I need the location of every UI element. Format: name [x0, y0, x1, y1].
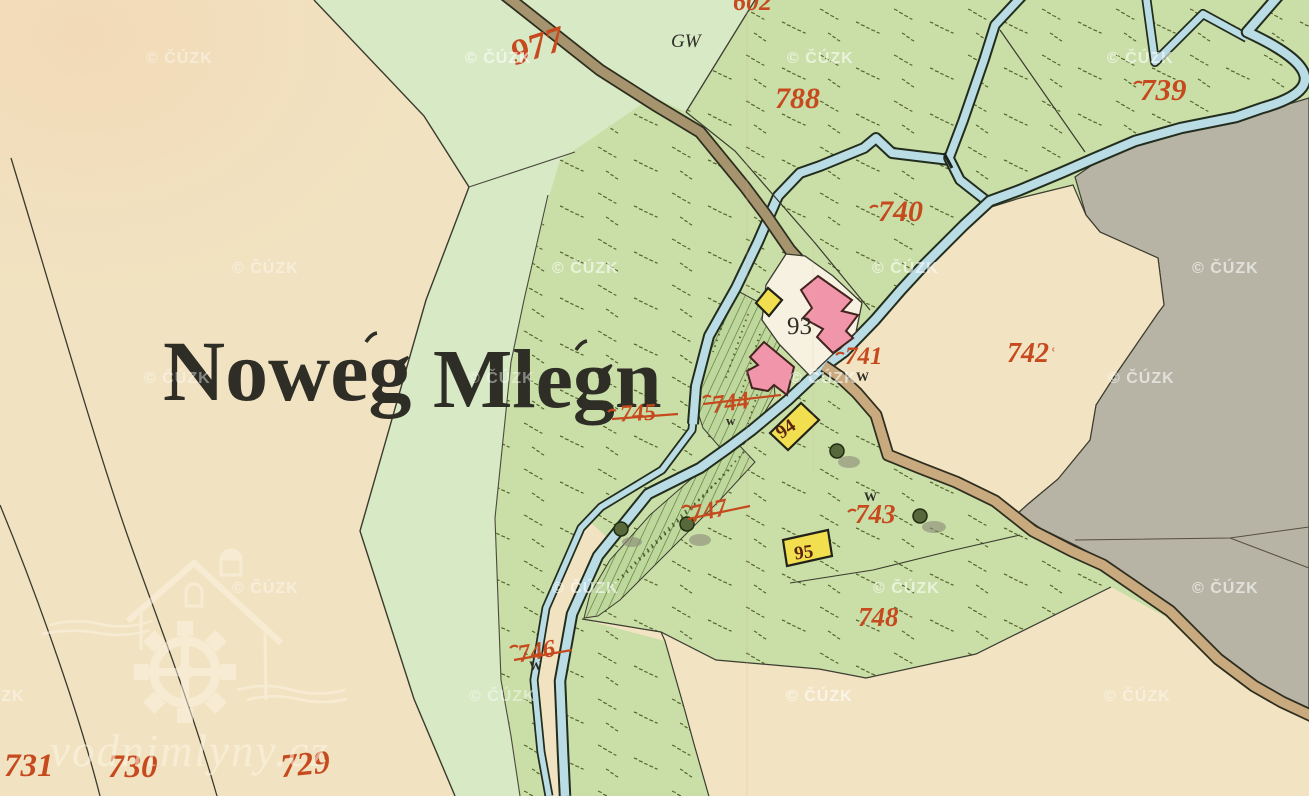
svg-text:93: 93 — [787, 313, 812, 340]
svg-text:© ČÚZK: © ČÚZK — [790, 368, 857, 387]
svg-text:© ČÚZK: © ČÚZK — [1192, 258, 1259, 277]
svg-text:© ČÚZK: © ČÚZK — [465, 48, 532, 67]
svg-text:© ČÚZK: © ČÚZK — [872, 258, 939, 277]
svg-text:© ČÚZK: © ČÚZK — [1192, 578, 1259, 597]
svg-text:vodnimlyny.cz: vodnimlyny.cz — [50, 726, 330, 776]
svg-text:748: 748 — [858, 602, 899, 632]
svg-text:© ČÚZK: © ČÚZK — [469, 686, 536, 705]
svg-text:745: 745 — [619, 400, 656, 428]
svg-text:© ČÚZK: © ČÚZK — [1104, 686, 1171, 705]
svg-text:© ČÚZK: © ČÚZK — [873, 578, 940, 597]
svg-text:740: 740 — [878, 195, 923, 228]
svg-text:W: W — [856, 369, 869, 384]
svg-text:739: 739 — [1140, 72, 1187, 107]
svg-text:© ČÚZK: © ČÚZK — [1107, 48, 1174, 67]
svg-text:© ČÚZK: © ČÚZK — [552, 578, 619, 597]
svg-text:741: 741 — [845, 343, 883, 370]
svg-text:95: 95 — [793, 541, 815, 564]
svg-text:GW: GW — [671, 31, 703, 52]
svg-text:© ČÚZK: © ČÚZK — [0, 686, 25, 705]
svg-text:788: 788 — [775, 82, 820, 115]
svg-text:© ČÚZK: © ČÚZK — [232, 578, 299, 597]
svg-text:© ČÚZK: © ČÚZK — [468, 368, 535, 387]
svg-text:742ʿ: 742ʿ — [1007, 338, 1056, 369]
svg-text:© ČÚZK: © ČÚZK — [144, 368, 211, 387]
svg-text:© ČÚZK: © ČÚZK — [552, 258, 619, 277]
svg-text:© ČÚZK: © ČÚZK — [232, 258, 299, 277]
svg-text:© ČÚZK: © ČÚZK — [787, 48, 854, 67]
svg-text:W: W — [864, 489, 877, 504]
svg-text:© ČÚZK: © ČÚZK — [1108, 368, 1175, 387]
svg-text:W: W — [529, 658, 542, 673]
svg-text:© ČÚZK: © ČÚZK — [786, 686, 853, 705]
svg-text:731: 731 — [4, 748, 54, 784]
svg-text:w: w — [726, 413, 736, 428]
svg-text:© ČÚZK: © ČÚZK — [146, 48, 213, 67]
svg-text:602: 602 — [733, 0, 772, 16]
